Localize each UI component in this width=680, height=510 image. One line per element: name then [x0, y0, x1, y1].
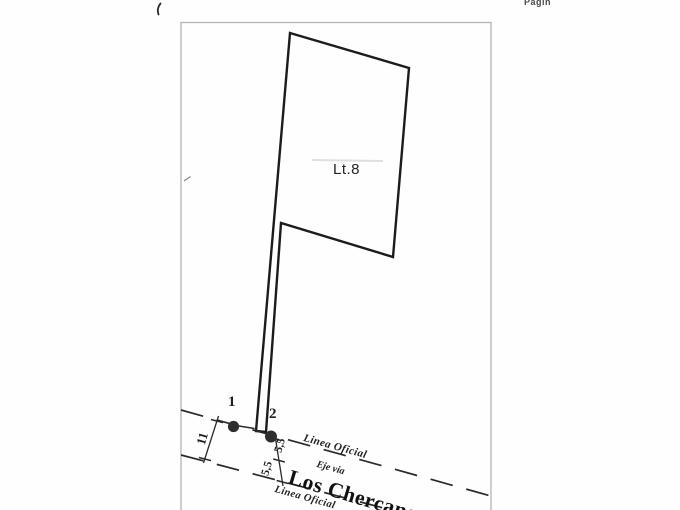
- lot-outline: [256, 33, 409, 432]
- point-2-label: 2: [269, 407, 277, 422]
- scanned-plan-page: Pagin Lt.8 1 2 Linea Oficial Eje via Los…: [0, 0, 680, 510]
- page-corner-text: Pagin: [524, 0, 551, 7]
- lot-label: Lt.8: [333, 162, 360, 177]
- point-1-tie-line: [239, 426, 255, 429]
- plan-drawing: [0, 0, 680, 510]
- scan-mark-frame-edge: [184, 177, 191, 182]
- page-frame: [181, 23, 491, 510]
- scan-mark-top-left: [158, 4, 161, 15]
- point-1-dot: [228, 421, 239, 432]
- point-1-label: 1: [228, 395, 236, 410]
